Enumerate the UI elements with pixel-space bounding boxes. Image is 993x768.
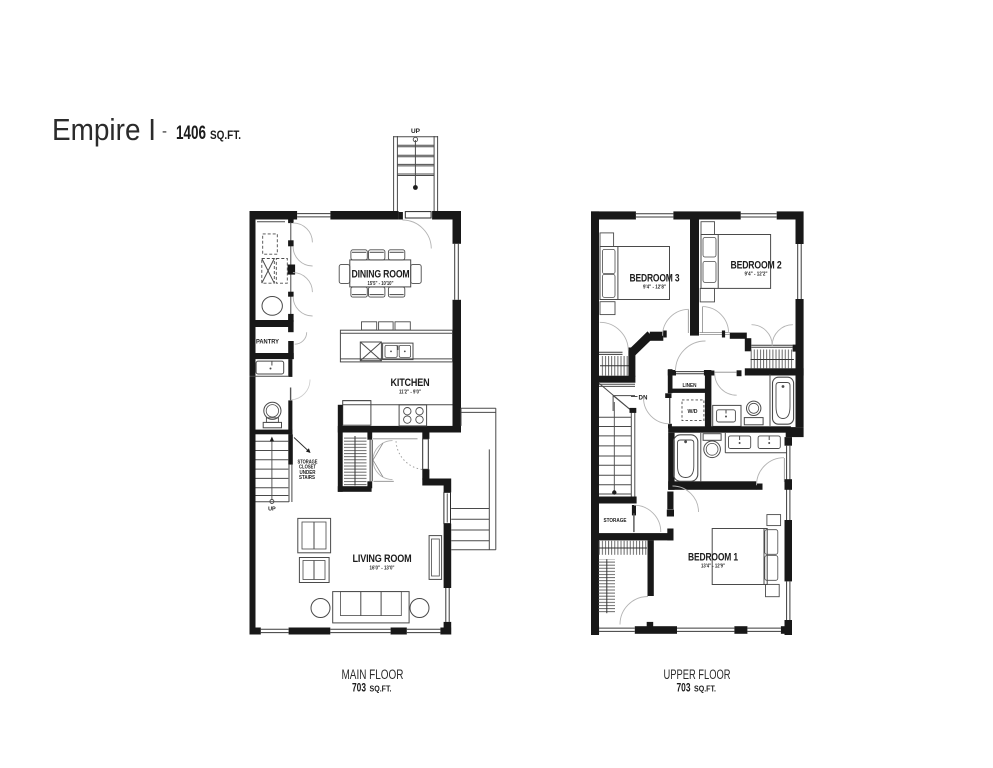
svg-text:16'0" - 13'0": 16'0" - 13'0"	[370, 566, 395, 572]
svg-text:KITCHEN: KITCHEN	[391, 377, 430, 389]
svg-text:MAIN FLOOR: MAIN FLOOR	[342, 667, 404, 682]
svg-text:DINING ROOM: DINING ROOM	[352, 269, 410, 281]
svg-text:703: 703	[352, 683, 366, 695]
svg-text:W/D: W/D	[687, 409, 697, 415]
svg-text:9'4" - 12'2": 9'4" - 12'2"	[745, 271, 768, 277]
svg-text:-: -	[162, 123, 167, 140]
svg-text:LINEN: LINEN	[683, 383, 697, 389]
svg-text:SQ.FT.: SQ.FT.	[210, 128, 241, 142]
svg-text:STORAGE: STORAGE	[604, 518, 627, 524]
svg-text:BEDROOM 1: BEDROOM 1	[688, 551, 738, 563]
svg-text:Empire I: Empire I	[52, 112, 156, 147]
svg-text:11'2" - 9'0": 11'2" - 9'0"	[399, 389, 421, 395]
svg-text:LIVING ROOM: LIVING ROOM	[353, 553, 412, 565]
svg-text:703: 703	[677, 683, 691, 695]
svg-text:SQ.FT.: SQ.FT.	[694, 685, 716, 694]
svg-text:UP: UP	[268, 507, 276, 513]
svg-text:UPPER FLOOR: UPPER FLOOR	[664, 667, 731, 682]
svg-text:15'5" - 10'10": 15'5" - 10'10"	[368, 281, 394, 287]
svg-text:UP: UP	[411, 128, 421, 135]
svg-text:BEDROOM 3: BEDROOM 3	[630, 272, 680, 284]
svg-text:BEDROOM 2: BEDROOM 2	[731, 259, 782, 271]
svg-text:SQ.FT.: SQ.FT.	[370, 685, 392, 694]
svg-text:9'4" - 12'8": 9'4" - 12'8"	[643, 284, 666, 290]
svg-text:STAIRS: STAIRS	[299, 475, 315, 481]
svg-text:PANTRY: PANTRY	[256, 340, 279, 346]
svg-text:1406: 1406	[176, 123, 206, 144]
svg-text:13'4" - 12'9": 13'4" - 12'9"	[701, 563, 725, 569]
